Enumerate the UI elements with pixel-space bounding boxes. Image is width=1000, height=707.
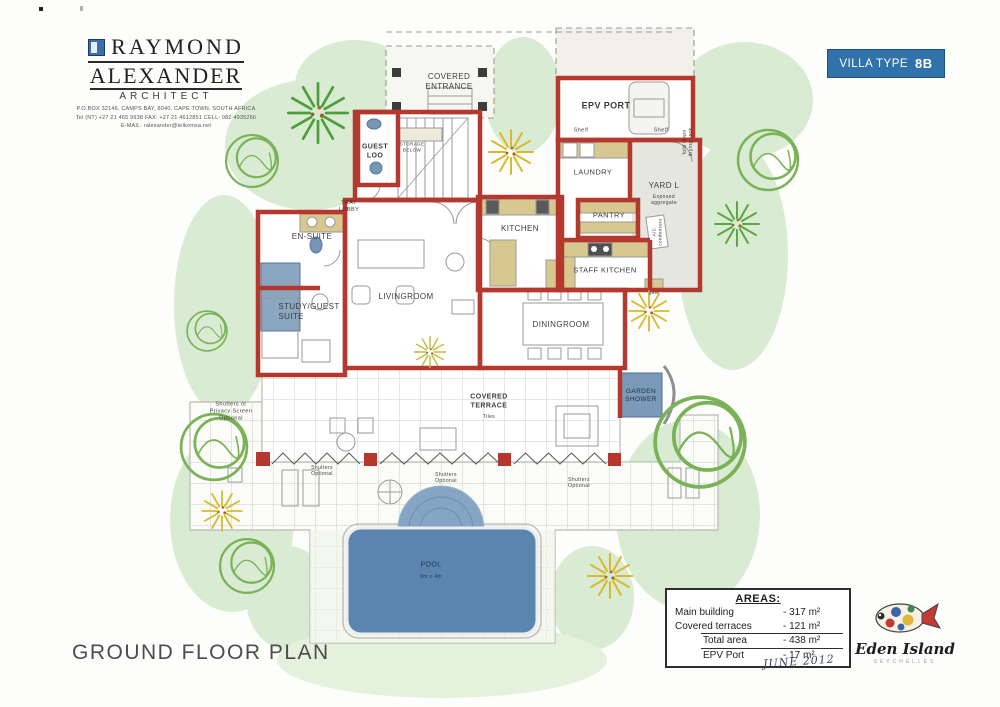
areas-row-total-area: Total area - 438 m²	[701, 633, 843, 648]
label-drying-rack: fold down drying rack	[682, 128, 695, 157]
label-ac-condensers: A/C condensers	[651, 218, 662, 245]
label-study-guest-suite: STUDY/GUEST SUITE	[278, 302, 339, 322]
areas-row-value: - 438 m²	[783, 634, 841, 648]
developer-name: Eden Island	[845, 640, 965, 658]
areas-row-main-building: Main building - 317 m²	[673, 606, 843, 620]
developer-logo: Eden Island SEYCHELLES	[845, 596, 965, 665]
label-epv-port: EPV PORT	[582, 100, 631, 111]
areas-row-value: - 317 m²	[783, 606, 841, 620]
architect-logo-icon	[88, 39, 105, 56]
label-storage-below: STORAGE BELOW	[400, 141, 425, 152]
label-shutters-optional-1: Shutters Optional	[311, 465, 333, 478]
label-yard-note: Exposed aggregate	[651, 194, 677, 207]
label-yard: YARD L	[649, 181, 680, 191]
areas-row-covered-terraces: Covered terraces - 121 m²	[673, 620, 843, 634]
label-shutters-optional-2: Shutters Optional	[435, 472, 457, 485]
label-covered-terrace: COVERED TERRACE	[470, 393, 507, 411]
label-shelf-left: Shelf	[574, 128, 589, 135]
label-en-suite: EN-SUITE	[292, 232, 333, 242]
areas-row-label: Covered terraces	[675, 620, 752, 634]
architect-role: ARCHITECT	[48, 91, 284, 102]
areas-row-label: Total area	[703, 634, 747, 648]
label-shutters-optional-3: Shutters Optional	[568, 477, 590, 490]
architect-title-block: RAYMOND ALEXANDER ARCHITECT P.O.BOX 3214…	[48, 34, 284, 130]
areas-row-label: Main building	[675, 606, 734, 620]
label-shutters-privacy: Shutters or Privacy Screen Optional	[210, 402, 253, 423]
label-pool: POOL	[420, 562, 441, 571]
areas-heading: AREAS:	[673, 593, 843, 605]
architect-email: E-MAIL: ralexander@telkomsa.net	[48, 122, 284, 130]
label-gate: gate	[649, 290, 659, 296]
label-diningroom: DININGROOM	[533, 320, 590, 330]
label-covered-entrance: COVERED ENTRANCE	[425, 72, 472, 92]
plan-title: GROUND FLOOR PLAN	[72, 641, 330, 665]
label-guest-loo: GUEST LOO	[362, 143, 388, 161]
label-pantry: PANTRY	[593, 210, 625, 219]
villa-type-badge: VILLA TYPE 8B	[827, 49, 945, 78]
label-tray-lobby: TRAY LOBBY	[339, 200, 359, 214]
architect-name-line1: RAYMOND	[111, 34, 244, 60]
areas-row-value: - 121 m²	[783, 620, 841, 634]
label-pool-size: 9m x 4m	[420, 574, 442, 580]
label-shelf-right: Shelf	[654, 128, 669, 135]
developer-tagline: SEYCHELLES	[845, 659, 965, 665]
scanned-floor-plan-page: COVERED ENTRANCE EPV PORT Shelf Shelf GU…	[0, 0, 1000, 707]
label-garden-shower: GARDEN SHOWER	[625, 388, 657, 404]
label-livingroom: LIVINGROOM	[378, 292, 433, 302]
label-staff-kitchen: STAFF KITCHEN	[573, 265, 636, 274]
architect-address: P.O.BOX 32146, CAMPS BAY, 8040, CAPE TOW…	[48, 105, 284, 113]
label-tiles: Tiles	[483, 414, 495, 420]
fish-icon	[866, 596, 944, 638]
villa-type-label: VILLA TYPE	[839, 58, 908, 70]
villa-type-value: 8B	[915, 56, 933, 71]
label-kitchen: KITCHEN	[501, 224, 539, 234]
covered-terrace-floor	[262, 368, 620, 462]
label-laundry: LAUNDRY	[574, 167, 613, 176]
architect-phones: Tel (NT) +27 21 465 9938 FAX: +27 21 461…	[48, 114, 284, 122]
architect-name-line2: ALEXANDER	[90, 63, 242, 90]
areas-row-label: EPV Port	[703, 649, 744, 663]
